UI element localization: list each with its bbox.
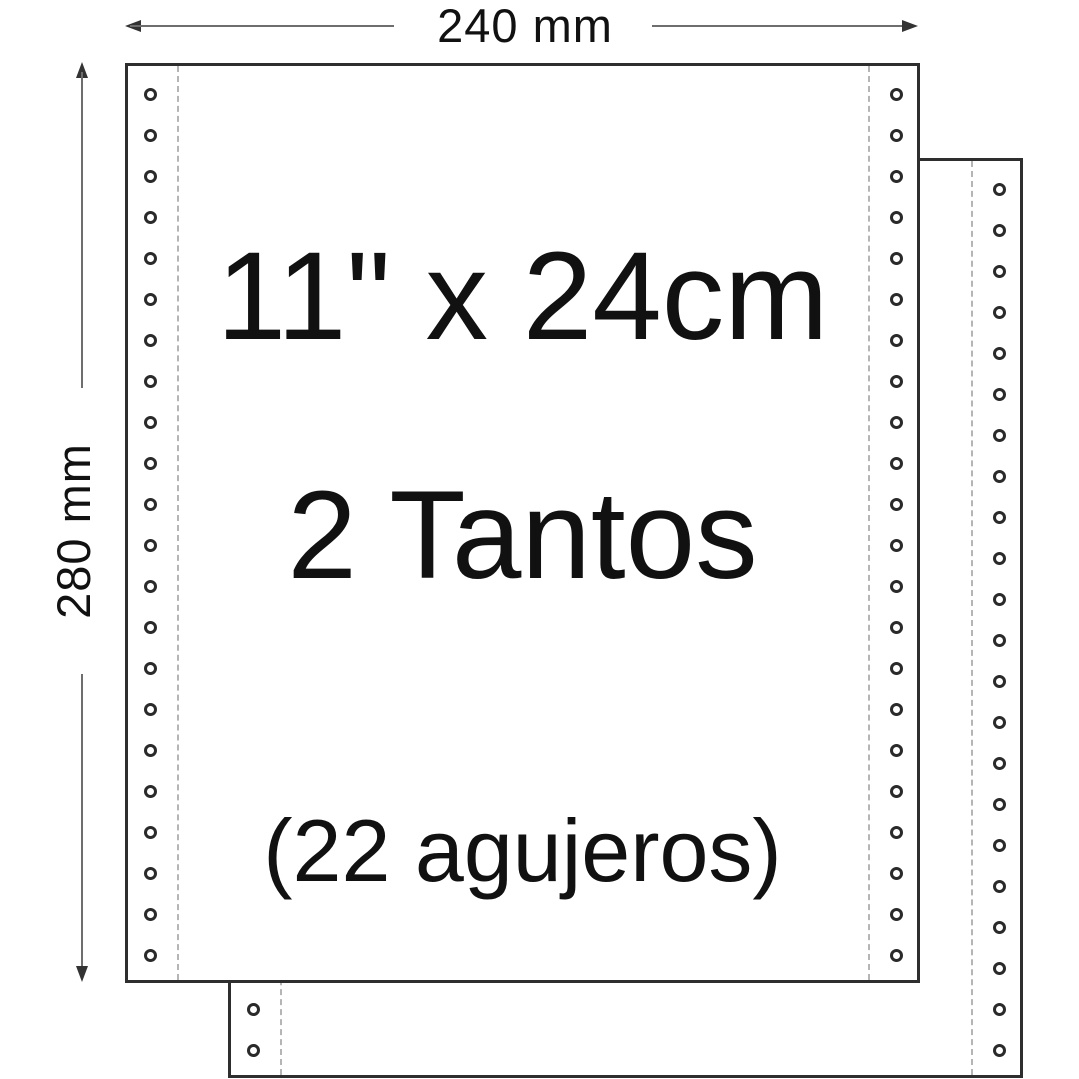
- tractor-hole: [890, 88, 903, 101]
- sheet-size-label: 11" x 24cm: [128, 227, 917, 367]
- tractor-hole: [993, 880, 1006, 893]
- tractor-hole: [144, 908, 157, 921]
- tractor-hole: [890, 416, 903, 429]
- dimension-line-segment: [81, 674, 83, 974]
- tractor-hole: [993, 675, 1006, 688]
- tractor-hole: [890, 621, 903, 634]
- tractor-hole: [993, 306, 1006, 319]
- tractor-holes-right: [993, 161, 1006, 1075]
- tractor-hole: [993, 552, 1006, 565]
- tractor-hole: [890, 375, 903, 388]
- tractor-hole: [144, 375, 157, 388]
- arrow-right-icon: [902, 20, 918, 32]
- tractor-hole: [993, 593, 1006, 606]
- dimension-line-segment: [81, 72, 83, 388]
- sheet-copies-label: 2 Tantos: [128, 466, 917, 606]
- tractor-hole: [890, 211, 903, 224]
- tractor-hole: [993, 634, 1006, 647]
- tractor-hole: [993, 1044, 1006, 1057]
- tractor-hole: [993, 798, 1006, 811]
- tractor-hole: [890, 129, 903, 142]
- tractor-hole: [993, 347, 1006, 360]
- tractor-hole: [144, 949, 157, 962]
- tractor-hole: [247, 1003, 260, 1016]
- tractor-hole: [993, 265, 1006, 278]
- tractor-hole: [144, 744, 157, 757]
- height-label: 280 mm: [49, 401, 99, 661]
- paper-diagram: 11" x 24cm 2 Tantos (22 agujeros) 240 mm…: [0, 0, 1079, 1079]
- tractor-hole: [890, 662, 903, 675]
- tractor-hole: [993, 388, 1006, 401]
- width-label: 240 mm: [395, 1, 655, 51]
- tractor-hole: [890, 703, 903, 716]
- tractor-hole: [890, 744, 903, 757]
- tractor-hole: [993, 716, 1006, 729]
- tractor-hole: [144, 170, 157, 183]
- tractor-hole: [890, 170, 903, 183]
- dimension-line-segment: [652, 25, 914, 27]
- tractor-hole: [993, 921, 1006, 934]
- front-sheet: 11" x 24cm 2 Tantos (22 agujeros): [125, 63, 920, 983]
- tractor-hole: [993, 757, 1006, 770]
- tractor-hole: [247, 1044, 260, 1057]
- tractor-hole: [890, 949, 903, 962]
- dimension-line-segment: [130, 25, 394, 27]
- tractor-hole: [144, 703, 157, 716]
- tractor-hole: [890, 908, 903, 921]
- tractor-hole: [993, 224, 1006, 237]
- sheet-holes-label: (22 agujeros): [128, 796, 917, 906]
- arrow-down-icon: [76, 966, 88, 982]
- tractor-hole: [993, 1003, 1006, 1016]
- perforation-line-right: [971, 161, 973, 1075]
- tractor-hole: [993, 839, 1006, 852]
- tractor-hole: [144, 416, 157, 429]
- tractor-hole: [993, 511, 1006, 524]
- tractor-hole: [144, 88, 157, 101]
- tractor-hole: [993, 470, 1006, 483]
- tractor-hole: [144, 211, 157, 224]
- tractor-hole: [144, 129, 157, 142]
- tractor-hole: [144, 621, 157, 634]
- tractor-hole: [993, 429, 1006, 442]
- tractor-hole: [993, 183, 1006, 196]
- tractor-hole: [144, 662, 157, 675]
- tractor-hole: [993, 962, 1006, 975]
